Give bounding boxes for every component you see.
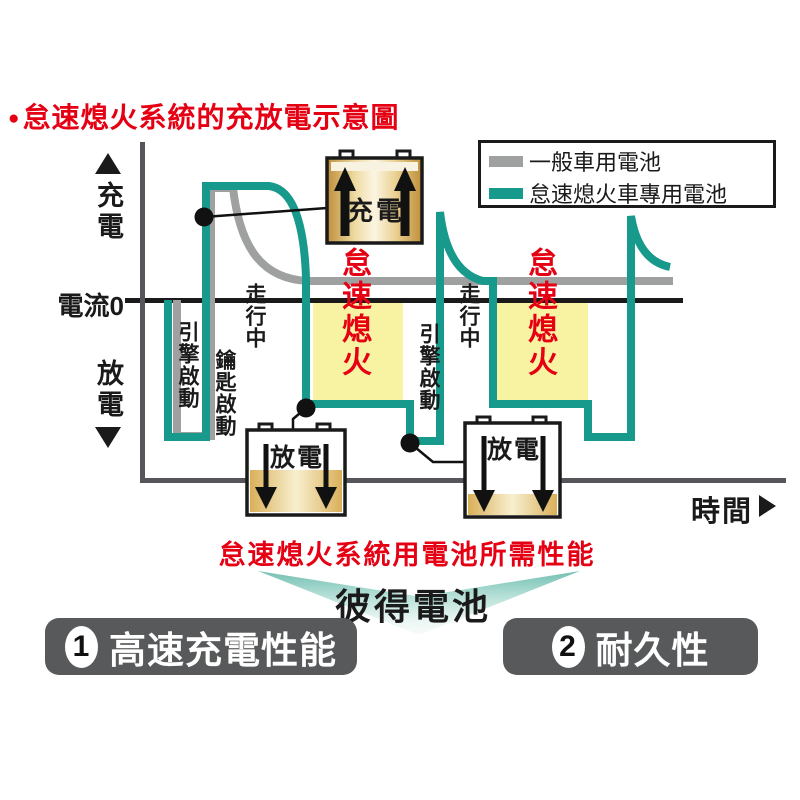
legend-swatch-gray <box>489 156 523 167</box>
y-axis-zero-label: 電流0 <box>40 286 124 323</box>
page-title: ●怠速熄火系統的充放電示意圖 <box>8 96 400 136</box>
legend-label: 怠速熄火車專用電池 <box>529 177 727 209</box>
feature-label: 耐久性 <box>596 620 710 674</box>
legend-item-normal-battery: 一般車用電池 <box>489 145 765 177</box>
title-bullet-icon: ● <box>8 108 20 129</box>
legend-swatch-teal <box>489 188 523 199</box>
phase-engine-start-1: 引擎啟動 <box>177 321 198 409</box>
legend-item-idle-stop-battery: 怠速熄火車專用電池 <box>489 177 765 209</box>
phase-engine-start-2: 引擎啟動 <box>418 323 439 411</box>
charge-battery-label: 充電 <box>347 191 405 228</box>
callout-dot-discharge-2 <box>401 434 420 453</box>
feature-number-badge: 1 <box>65 626 98 668</box>
legend-label: 一般車用電池 <box>529 145 661 177</box>
callout-dot-discharge-1 <box>297 399 316 418</box>
phase-key-start: 鑰匙啟動 <box>214 349 235 437</box>
phase-driving-2: 走行中 <box>458 283 479 349</box>
phase-driving-1: 走行中 <box>244 283 265 349</box>
feature-label: 高速充電性能 <box>109 620 337 674</box>
phase-idle-stop-1: 怠速熄火 <box>338 247 368 379</box>
y-axis-charge-label: 充電 <box>94 181 121 243</box>
feature-button-fast-charge: 1 高速充電性能 <box>45 618 357 675</box>
x-axis-time-label: 時間 <box>691 488 753 530</box>
discharge-battery-label-1: 放電 <box>270 438 324 474</box>
title-text: 怠速熄火系統的充放電示意圖 <box>22 102 399 133</box>
charge-direction-arrow-icon <box>95 153 121 174</box>
required-performance-subtitle: 怠速熄火系統用電池所需性能 <box>14 533 800 572</box>
x-axis-line <box>140 478 786 483</box>
time-direction-arrow-icon <box>759 495 776 517</box>
feature-number-badge: 2 <box>552 626 585 668</box>
chart-legend: 一般車用電池 怠速熄火車專用電池 <box>478 140 776 208</box>
callout-dot-charge <box>195 208 214 227</box>
y-axis-discharge-label: 放電 <box>94 359 121 421</box>
phase-idle-stop-2: 怠速熄火 <box>524 247 554 379</box>
infographic-page: ●怠速熄火系統的充放電示意圖 一般車用電池 怠速熄火車專用電池 充電 電流0 放… <box>0 0 800 800</box>
y-axis-line <box>140 142 145 483</box>
feature-button-durability: 2 耐久性 <box>503 618 758 675</box>
discharge-battery-label-2: 放電 <box>487 430 541 466</box>
discharge-direction-arrow-icon <box>95 427 121 448</box>
